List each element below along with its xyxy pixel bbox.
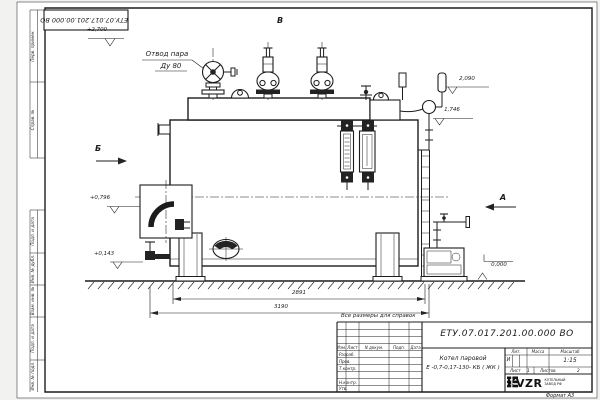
reference-note: Все размеры для справок	[341, 314, 416, 320]
boiler-coil-icon	[507, 376, 518, 388]
level-mark-0796: +0,796	[90, 196, 110, 202]
margin-label: Инв. № подл.	[31, 360, 35, 392]
view-marker-v: В	[277, 17, 283, 25]
dimension-3190: 3190	[274, 305, 288, 311]
margin-label: Инв. № дубл.	[31, 253, 35, 285]
margin-label: Подп. и дата	[31, 210, 35, 253]
steam-outlet-label: Отвод пара	[146, 51, 189, 58]
row-tkontr: Т.контр.	[339, 367, 356, 371]
margin-label: Перв. примен.	[31, 10, 35, 82]
doc-number: ЕТУ.07.017.201.00.000 ВО	[440, 330, 574, 339]
margin-label: Подп. и дата	[31, 317, 35, 360]
sheets-label: Листов	[540, 369, 556, 373]
scale-header: Масштаб	[560, 350, 579, 354]
col-podp: Подп.	[393, 346, 405, 350]
scale-value: 1:15	[563, 358, 576, 364]
part-title-line1: Котел паровой	[439, 356, 486, 362]
format-note: Формат А3	[546, 394, 574, 399]
level-mark-1746: 1,746	[444, 108, 460, 114]
sheet-num: 1	[527, 369, 530, 373]
mass-header: Масса	[532, 350, 545, 354]
row-razrab: Разраб.	[339, 353, 355, 357]
level-mark-0000: 0,000	[491, 263, 507, 269]
col-list: Лист	[347, 346, 357, 350]
col-data: Дата	[410, 346, 420, 350]
row-utv: Утв.	[339, 387, 347, 391]
margin-label: Взам. инв. №	[31, 285, 35, 317]
level-mark-0143: +0,143	[94, 252, 114, 258]
row-prov: Пров.	[339, 360, 351, 364]
col-izm: Изм.	[337, 346, 346, 350]
logo-subtext: КОТЕЛЬНЫЙ ЗАВОД РФ	[544, 379, 565, 387]
left-stub	[158, 123, 170, 136]
sheets-num: 2	[577, 369, 580, 373]
dimension-2891: 2891	[292, 291, 306, 297]
view-marker-a: А	[500, 194, 506, 202]
drawing-sheet: ЕТУ.07.017.201.00.000 ВО Перв. примен. С…	[0, 0, 600, 400]
view-marker-b: Б	[95, 145, 101, 153]
col-doc: N докум.	[365, 346, 384, 350]
sheet-label: Лист	[510, 369, 521, 373]
company-logo: KVZR КОТЕЛЬНЫЙ ЗАВОД РФ	[507, 376, 591, 391]
level-mark-2700: +2,700	[87, 28, 107, 34]
front-gauge-box	[140, 180, 192, 243]
lit-header: Лит.	[511, 350, 520, 354]
margin-label: Справ. №	[31, 82, 35, 158]
row-nkontr: Н.контр.	[339, 381, 357, 385]
lit-value: И	[507, 358, 511, 363]
steam-outlet-dn: Ду 80	[161, 63, 182, 70]
part-title-line2: Е -0,7-0,17-130- КБ ( ЖК )	[426, 366, 499, 372]
level-mark-2090: 2,090	[459, 77, 475, 83]
